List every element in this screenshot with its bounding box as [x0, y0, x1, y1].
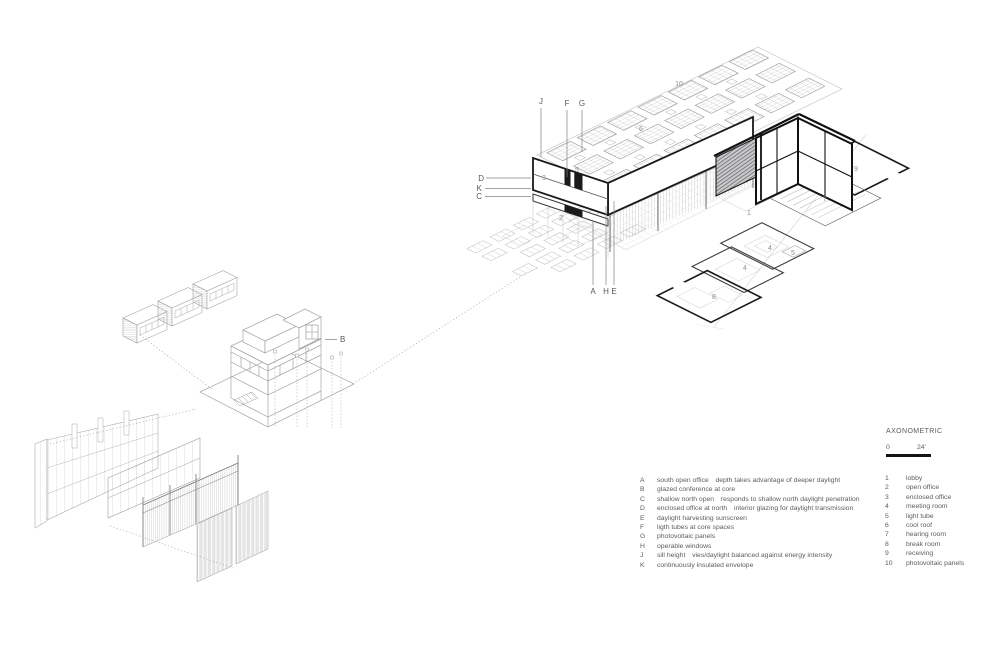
pv-box-studies	[123, 271, 237, 343]
num-tube-plan: 5	[791, 250, 795, 257]
callout-E: E	[611, 287, 616, 296]
legend-number-row: 6cool roof	[885, 521, 995, 530]
scale-bar	[886, 454, 931, 457]
room-break	[657, 271, 761, 323]
legend-number-row: 1lobby	[885, 474, 995, 483]
legend-desc: cool roof	[906, 521, 932, 530]
legend-number-row: 3enclosed office	[885, 493, 995, 502]
scale-start: 0	[886, 444, 890, 451]
legend-letters: Asouth open office depth takes advantage…	[640, 476, 890, 570]
num-openoffice: 2	[559, 215, 563, 222]
callout-C: C	[476, 192, 482, 201]
legend-key: D	[640, 504, 657, 513]
legend-desc: sill height vies/daylight balanced again…	[657, 551, 832, 560]
num-enclosed: 3	[542, 175, 546, 182]
legend-key: 8	[885, 540, 906, 549]
legend-desc: ligth tubes at core spaces	[657, 523, 734, 532]
stair-hatch	[234, 392, 258, 406]
scale-block: AXONOMETRIC 0 24'	[886, 428, 943, 457]
legend-key: F	[640, 523, 657, 532]
legend-key: 9	[885, 549, 906, 558]
legend-desc: daylight harvesting sunscreen	[657, 514, 747, 523]
num-hearing: 7	[823, 196, 827, 203]
num-lobby: 1	[747, 210, 751, 217]
legend-key: 2	[885, 483, 906, 492]
scale-end: 24'	[917, 444, 926, 451]
legend-desc: hearing room	[906, 530, 946, 539]
legend-desc: light tube	[906, 512, 934, 521]
num-pv: 10	[675, 81, 683, 88]
legend-desc: photovoltaic panels	[906, 559, 964, 568]
legend-number-row: 7hearing room	[885, 530, 995, 539]
callout-F: F	[565, 99, 570, 108]
num-meeting-b: 4	[743, 265, 747, 272]
legend-desc: meeting room	[906, 502, 948, 511]
legend-key: 6	[885, 521, 906, 530]
legend-letter-row: Gphotovoltaic panels	[640, 532, 890, 541]
legend-desc: south open office depth takes advantage …	[657, 476, 840, 485]
legend-desc: open office	[906, 483, 939, 492]
legend-number-row: 9receiving	[885, 549, 995, 558]
legend-letter-row: Bglazed conference at core	[640, 485, 890, 494]
wall-studies	[35, 411, 268, 582]
callout-D: D	[478, 174, 484, 183]
legend-letter-row: Hoperable windows	[640, 542, 890, 551]
callout-H: H	[603, 287, 609, 296]
legend-key: 3	[885, 493, 906, 502]
callout-G: G	[579, 99, 585, 108]
legend-letter-row: Asouth open office depth takes advantage…	[640, 476, 890, 485]
legend-number-row: 4meeting room	[885, 502, 995, 511]
legend-number-row: 10photovoltaic panels	[885, 559, 995, 568]
legend-desc: shallow north open responds to shallow n…	[657, 495, 860, 504]
legend-key: G	[640, 532, 657, 541]
legend-desc: lobby	[906, 474, 922, 483]
legend-letter-row: Jsill height vies/daylight balanced agai…	[640, 551, 890, 560]
legend-key: J	[640, 551, 657, 560]
callout-J: J	[539, 97, 543, 106]
legend-desc: continuously insulated envelope	[657, 561, 753, 570]
legend-key: E	[640, 514, 657, 523]
legend-letter-row: Fligth tubes at core spaces	[640, 523, 890, 532]
legend-key: 4	[885, 502, 906, 511]
legend-key: B	[640, 485, 657, 494]
legend-number-row: 2open office	[885, 483, 995, 492]
legend-desc: enclosed office at north interior glazin…	[657, 504, 853, 513]
num-lighttube: 5	[575, 167, 579, 174]
legend-key: C	[640, 495, 657, 504]
legend-letter-row: Kcontinuously insulated envelope	[640, 561, 890, 570]
legend-desc: enclosed office	[906, 493, 951, 502]
legend-key: 7	[885, 530, 906, 539]
callout-A: A	[590, 287, 596, 296]
num-coolroof: 6	[639, 126, 643, 133]
legend-key: 5	[885, 512, 906, 521]
num-break: 8	[712, 294, 716, 301]
num-receiving: 9	[854, 166, 858, 173]
legend-desc: glazed conference at core	[657, 485, 735, 494]
legend-letter-row: Cshallow north open responds to shallow …	[640, 495, 890, 504]
legend-number-row: 5light tube	[885, 512, 995, 521]
legend-letter-row: Edaylight harvesting sunscreen	[640, 514, 890, 523]
legend-desc: photovoltaic panels	[657, 532, 715, 541]
legend-desc: receiving	[906, 549, 933, 558]
num-meeting-a: 4	[768, 245, 772, 252]
axonometric-sheet: J F G D K C A H E B 10 6 5 3 2 1 9 7 4 5…	[0, 0, 1000, 647]
legend-desc: break room	[906, 540, 940, 549]
massing-study	[200, 309, 354, 428]
callout-B: B	[340, 335, 345, 344]
legend-key: K	[640, 561, 657, 570]
legend-key: A	[640, 476, 657, 485]
legend-number-row: 8break room	[885, 540, 995, 549]
legend-key: 10	[885, 559, 906, 568]
legend-key: H	[640, 542, 657, 551]
legend-numbers: 1lobby 2open office 3enclosed office 4me…	[885, 474, 995, 568]
legend-desc: operable windows	[657, 542, 711, 551]
legend-key: 1	[885, 474, 906, 483]
drawing-title: AXONOMETRIC	[886, 428, 943, 435]
legend-letter-row: Denclosed office at north interior glazi…	[640, 504, 890, 513]
